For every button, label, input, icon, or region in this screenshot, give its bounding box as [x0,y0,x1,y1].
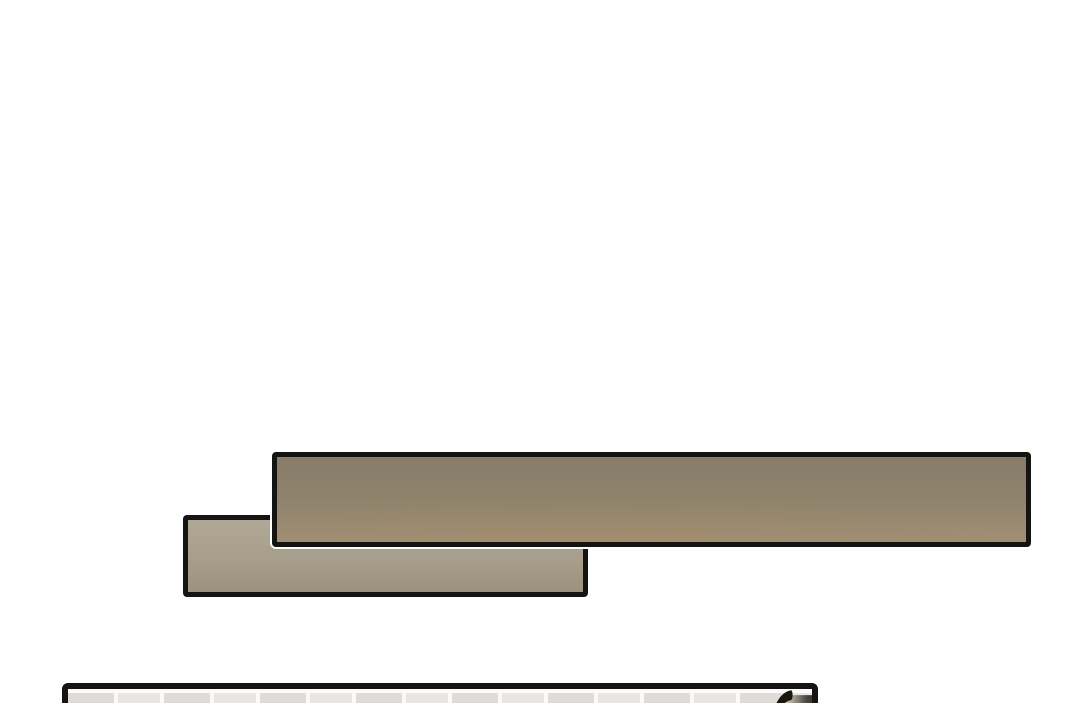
rounded-object-silhouette [764,689,812,703]
brick-wall-texture [68,689,812,703]
panel-sky-wide-top [272,452,1031,547]
panel-bottom-partial [62,683,818,703]
comic-page-canvas [0,0,1080,703]
